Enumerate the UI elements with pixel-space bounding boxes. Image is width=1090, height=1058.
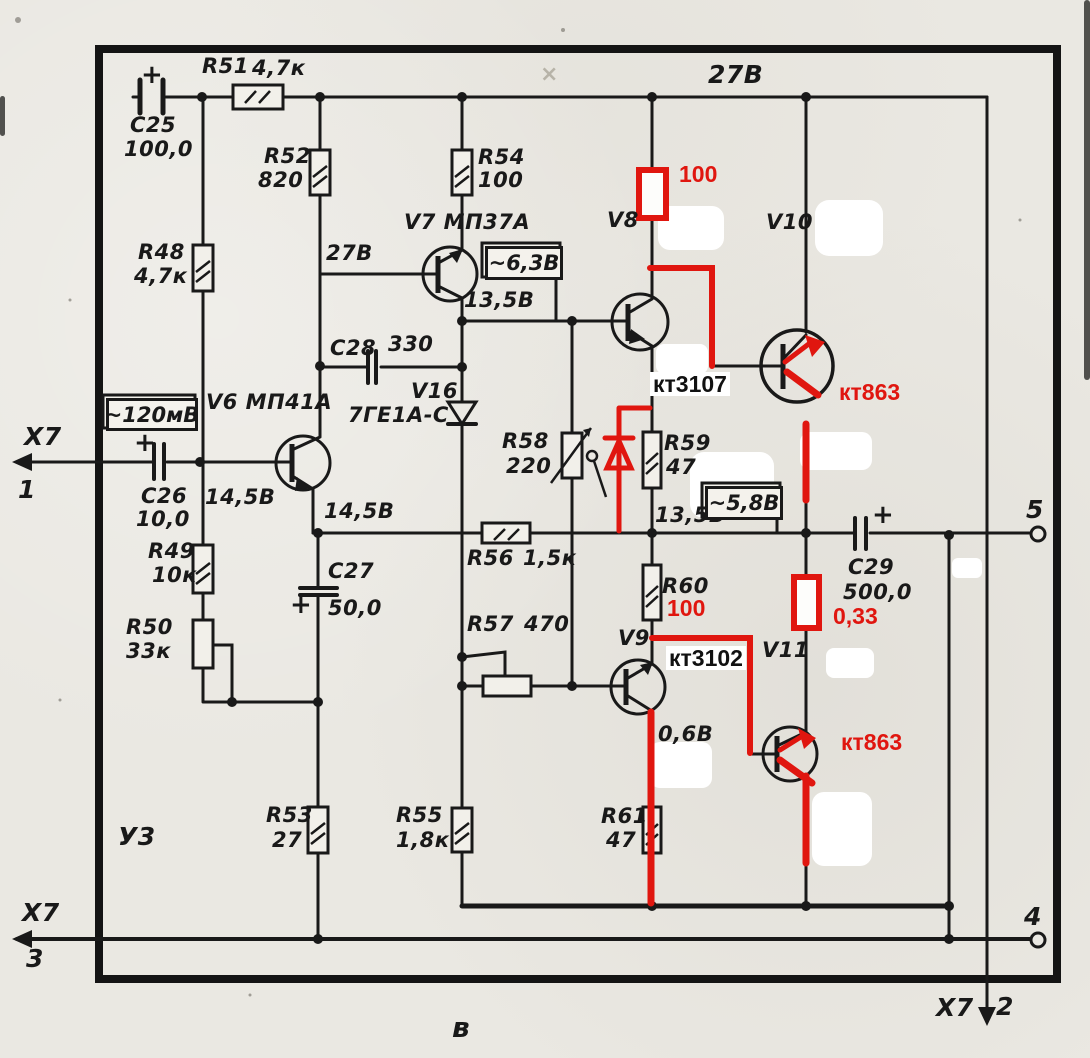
red-value-output: 0,33	[830, 604, 881, 628]
x7-2-pin: 2	[996, 994, 1014, 1019]
red-value-r60: 100	[664, 596, 708, 620]
r57-value: 470	[524, 614, 569, 635]
v8-type-annotation: кт3107	[650, 372, 730, 396]
red-v11-arrow	[780, 728, 816, 783]
c28-ref: C28	[330, 338, 376, 359]
x7-2-name: X7	[936, 995, 974, 1020]
r51-ref: R51	[202, 56, 249, 77]
r50-value: 33к	[126, 641, 171, 662]
c26-plus: +	[134, 430, 156, 456]
red-v10-arrow	[785, 335, 825, 395]
driver-meter-box: ~6,3В	[485, 246, 563, 280]
input-meter-box: ~120мВ	[106, 398, 198, 431]
v16-diode-symbol	[448, 402, 476, 424]
r48-value: 4,7к	[134, 266, 187, 287]
r55-value: 1,8к	[396, 830, 449, 851]
red-resistor-v8-emitter	[639, 170, 666, 218]
module-label: У3	[118, 824, 156, 849]
r53-ref: R53	[266, 805, 313, 826]
v16-ref: V16	[411, 381, 458, 402]
r57-ref: R57	[467, 614, 514, 635]
v7-collector-voltage: 27В	[326, 243, 373, 264]
pin5-label: 5	[1026, 497, 1044, 522]
c25-value: 100,0	[124, 139, 193, 160]
r58-value: 220	[506, 456, 551, 477]
r60-ref: R60	[662, 576, 709, 597]
terminal-circles	[1031, 527, 1045, 947]
r59-value: 47	[666, 457, 696, 478]
c28-value: 330	[388, 334, 433, 355]
v6-emitter-voltage: 14,5В	[324, 501, 394, 522]
v7-emitter-voltage: 13,5В	[464, 290, 534, 311]
r56-value: 1,5к	[523, 548, 576, 569]
v11-type-annotation: кт863	[838, 730, 905, 754]
r58-ref: R58	[502, 431, 549, 452]
schematic-frame	[99, 49, 1057, 979]
red-annotations	[605, 170, 825, 903]
x7-3-pin: 3	[26, 946, 44, 971]
red-resistor-output	[794, 577, 819, 628]
r52-ref: R52	[264, 146, 311, 167]
rail-voltage: 27В	[708, 62, 763, 87]
r55-ref: R55	[396, 805, 443, 826]
red-value-v8-emitter: 100	[676, 162, 720, 186]
r49-ref: R49	[148, 541, 195, 562]
v6-ref: V6 МП41А	[206, 392, 332, 413]
c29-value: 500,0	[843, 582, 912, 603]
pin4-label: 4	[1024, 904, 1042, 929]
r53-value: 27	[272, 830, 302, 851]
v16-value: 7ГЕ1А-С	[348, 405, 449, 426]
c26-ref: C26	[141, 486, 187, 507]
c25-plus: +	[141, 62, 163, 88]
v10-ref: V10	[766, 212, 813, 233]
r51-value: 4,7к	[252, 58, 305, 79]
r52-value: 820	[258, 170, 303, 191]
scan-corner-smudge	[0, 96, 5, 136]
v9-be-voltage: 0,6В	[658, 724, 713, 745]
scan-edge-smudge	[1084, 0, 1090, 380]
v9-ref: V9	[618, 628, 650, 649]
r56-ref: R56	[467, 548, 514, 569]
v9-type-annotation: кт3102	[666, 646, 746, 670]
r61-value: 47	[606, 830, 636, 851]
transistor-v6	[200, 436, 330, 490]
c27-value: 50,0	[328, 598, 382, 619]
r54-value: 100	[478, 170, 523, 191]
r54-ref: R54	[478, 147, 525, 168]
v8-ref: V8	[607, 210, 639, 231]
c25-ref: C25	[130, 115, 176, 136]
v10-type-annotation: кт863	[836, 380, 903, 404]
pencil-cross-mark: ×	[540, 62, 558, 87]
c26-value: 10,0	[136, 509, 190, 530]
output-meter-box: ~5,8В	[705, 486, 783, 520]
resistor-bodies	[193, 85, 661, 853]
x7-1-pin: 1	[18, 477, 36, 502]
section-label: в	[452, 1014, 470, 1042]
c27-plus: +	[290, 592, 312, 618]
x7-1-name: X7	[24, 424, 62, 449]
v7-ref: V7 МП37А	[404, 212, 530, 233]
x7-3-name: X7	[22, 900, 60, 925]
v11-ref: V11	[762, 640, 809, 661]
r61-ref: R61	[601, 806, 648, 827]
resistor-marks	[196, 91, 658, 845]
c29-plus: +	[872, 502, 894, 528]
c29-ref: C29	[848, 557, 894, 578]
r49-value: 10к	[152, 565, 197, 586]
c27-ref: C27	[328, 561, 374, 582]
v6-base-voltage: 14,5В	[205, 487, 275, 508]
r50-ref: R50	[126, 617, 173, 638]
r48-ref: R48	[138, 242, 185, 263]
r59-ref: R59	[664, 433, 711, 454]
